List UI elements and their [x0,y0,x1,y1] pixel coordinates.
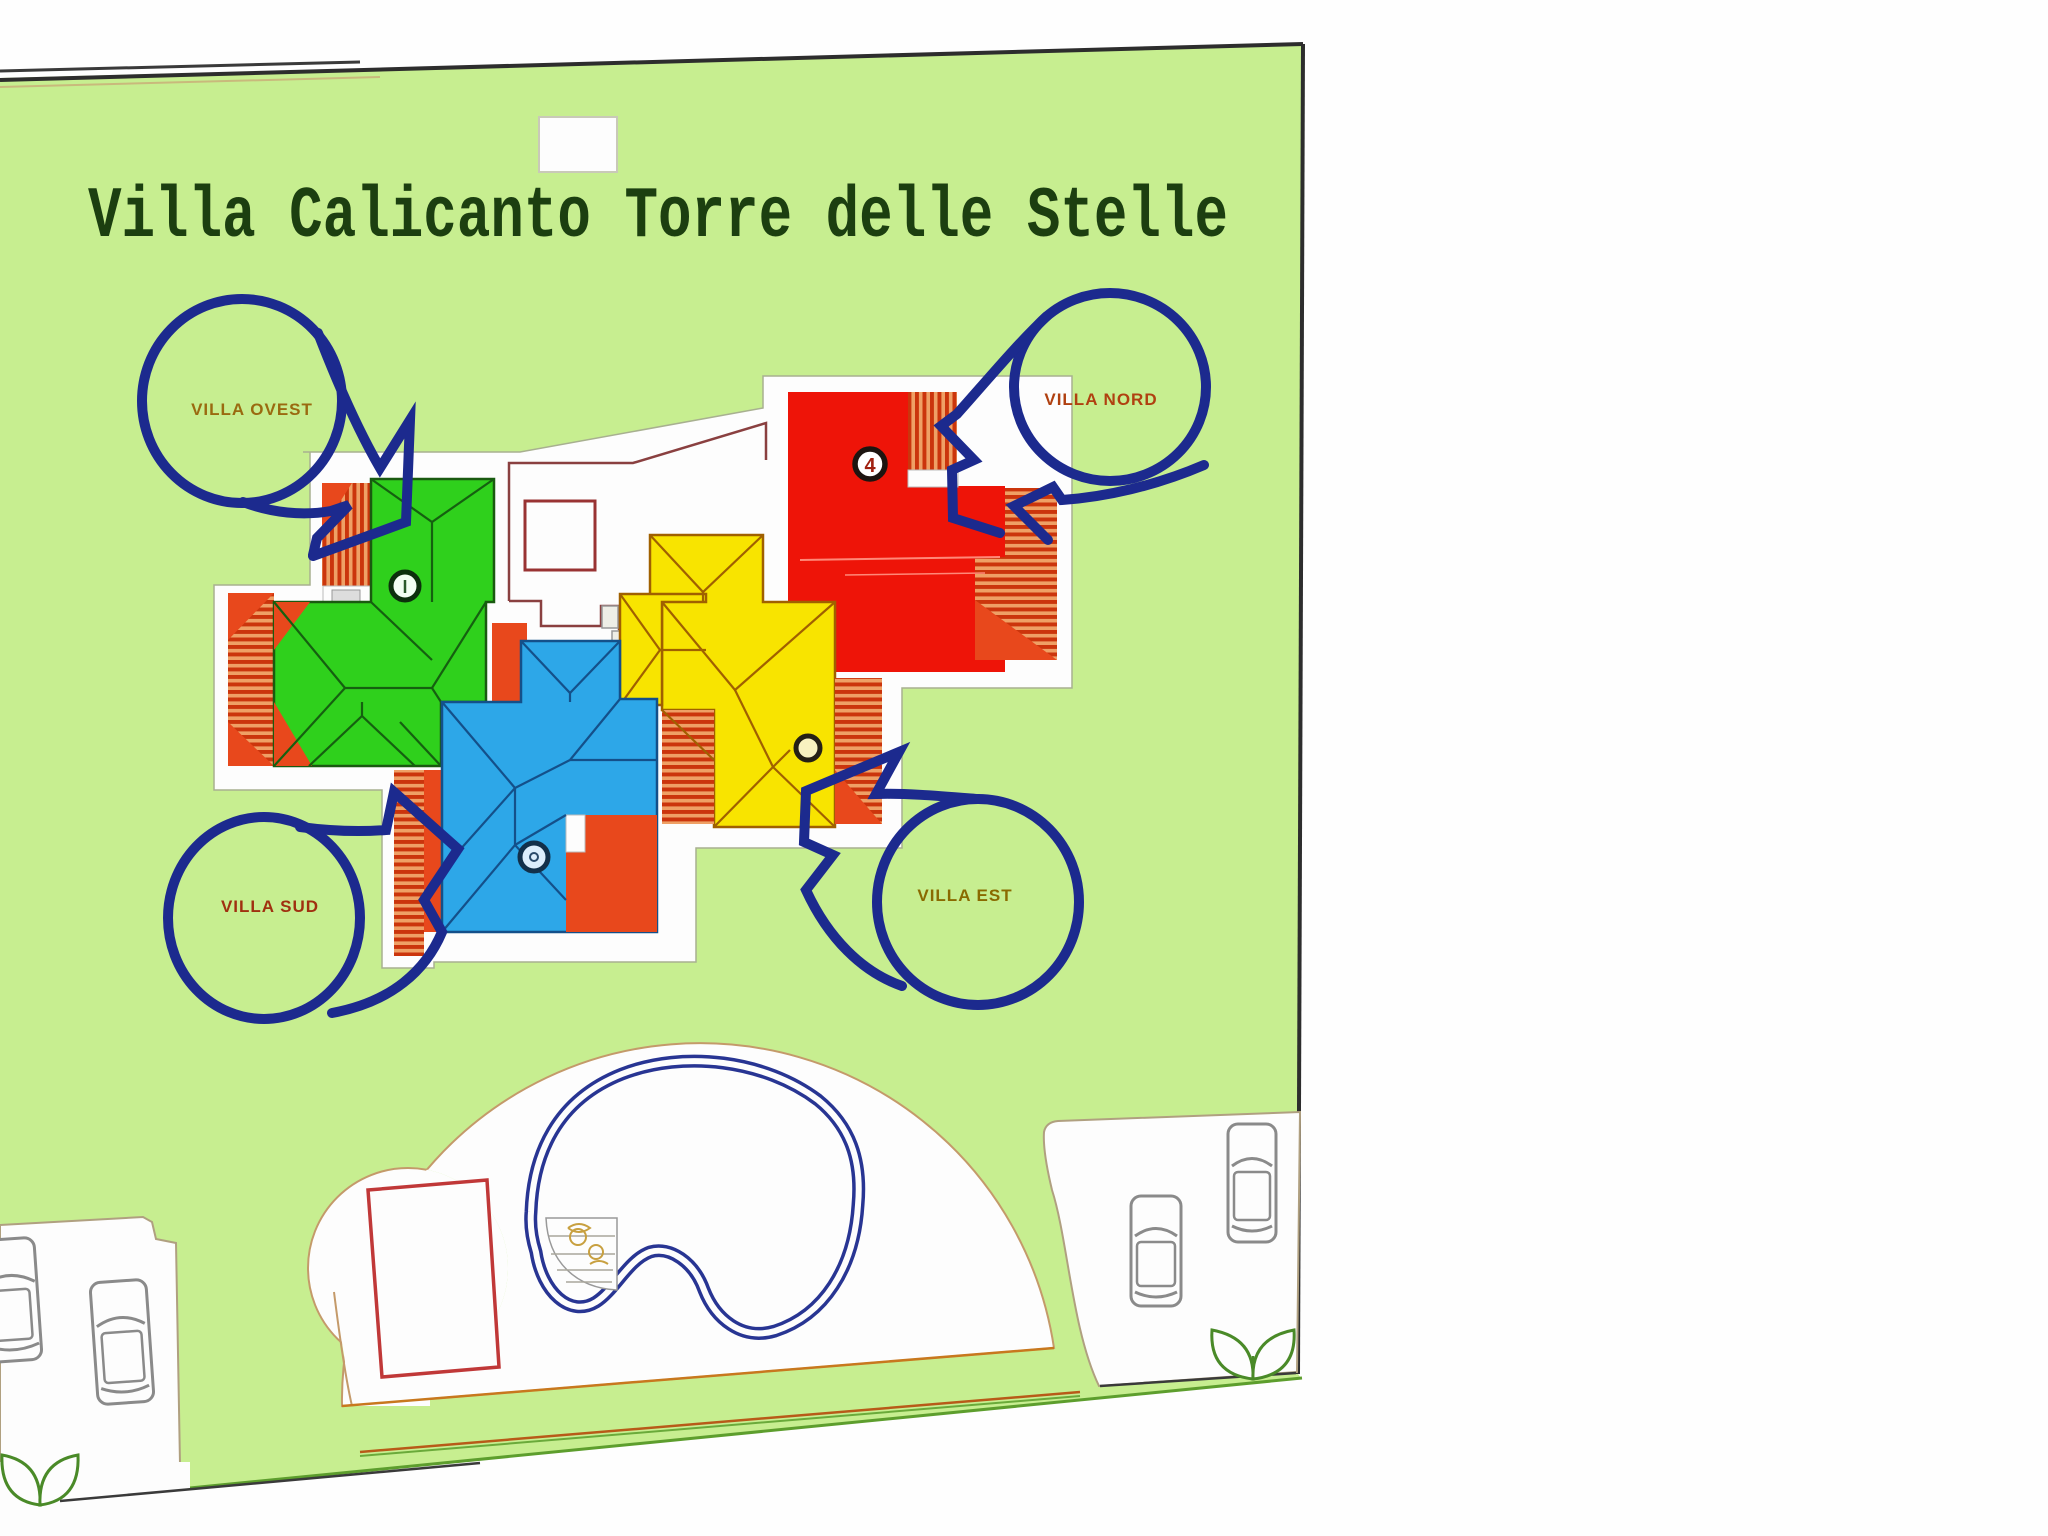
svg-text:VILLA SUD: VILLA SUD [221,897,319,916]
svg-text:VILLA NORD: VILLA NORD [1044,390,1157,409]
svg-text:4: 4 [864,455,876,477]
svg-text:VILLA OVEST: VILLA OVEST [191,400,313,419]
svg-text:Villa Calicanto Torre delle St: Villa Calicanto Torre delle Stelle [88,176,1228,258]
svg-text:VILLA EST: VILLA EST [917,886,1012,905]
